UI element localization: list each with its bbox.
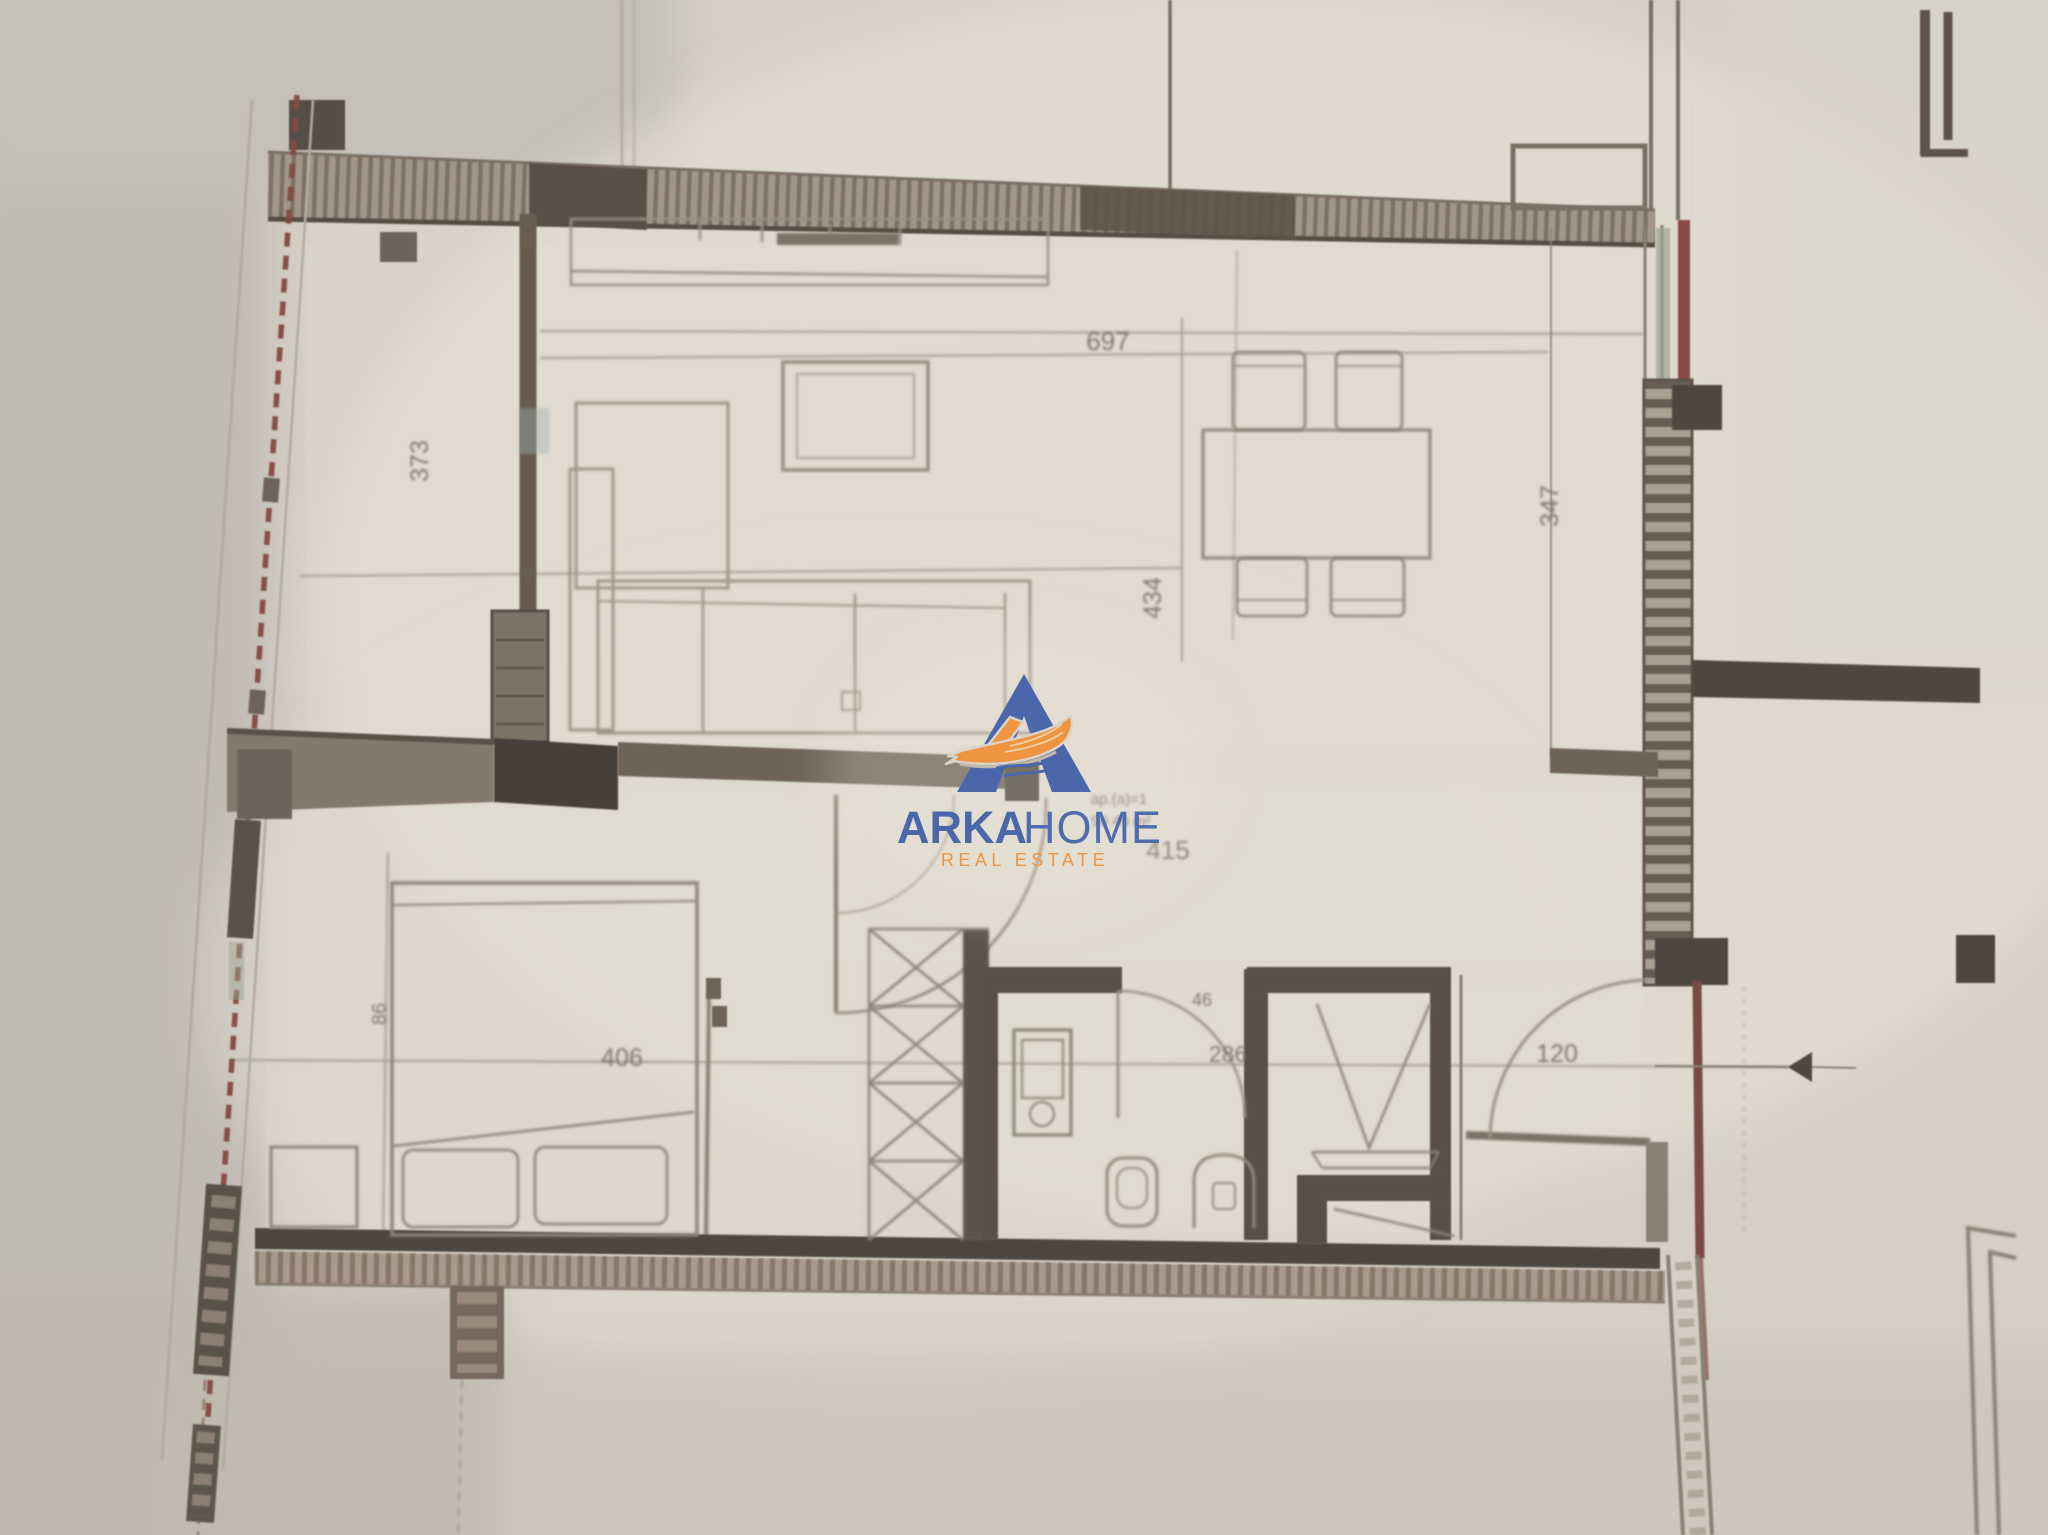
svg-text:86: 86 <box>369 1003 391 1025</box>
svg-text:46: 46 <box>1192 990 1212 1010</box>
svg-text:406: 406 <box>601 1044 643 1072</box>
svg-text:347: 347 <box>1536 485 1564 527</box>
svg-text:120: 120 <box>1536 1040 1578 1068</box>
svg-text:REAL ESTATE: REAL ESTATE <box>941 850 1109 870</box>
svg-text:373: 373 <box>406 440 434 482</box>
svg-text:ARKA: ARKA <box>897 802 1027 853</box>
svg-text:697: 697 <box>1086 326 1129 356</box>
svg-text:434: 434 <box>1139 577 1167 619</box>
svg-text:286: 286 <box>1209 1041 1247 1067</box>
svg-text:HOME: HOME <box>1023 802 1162 853</box>
